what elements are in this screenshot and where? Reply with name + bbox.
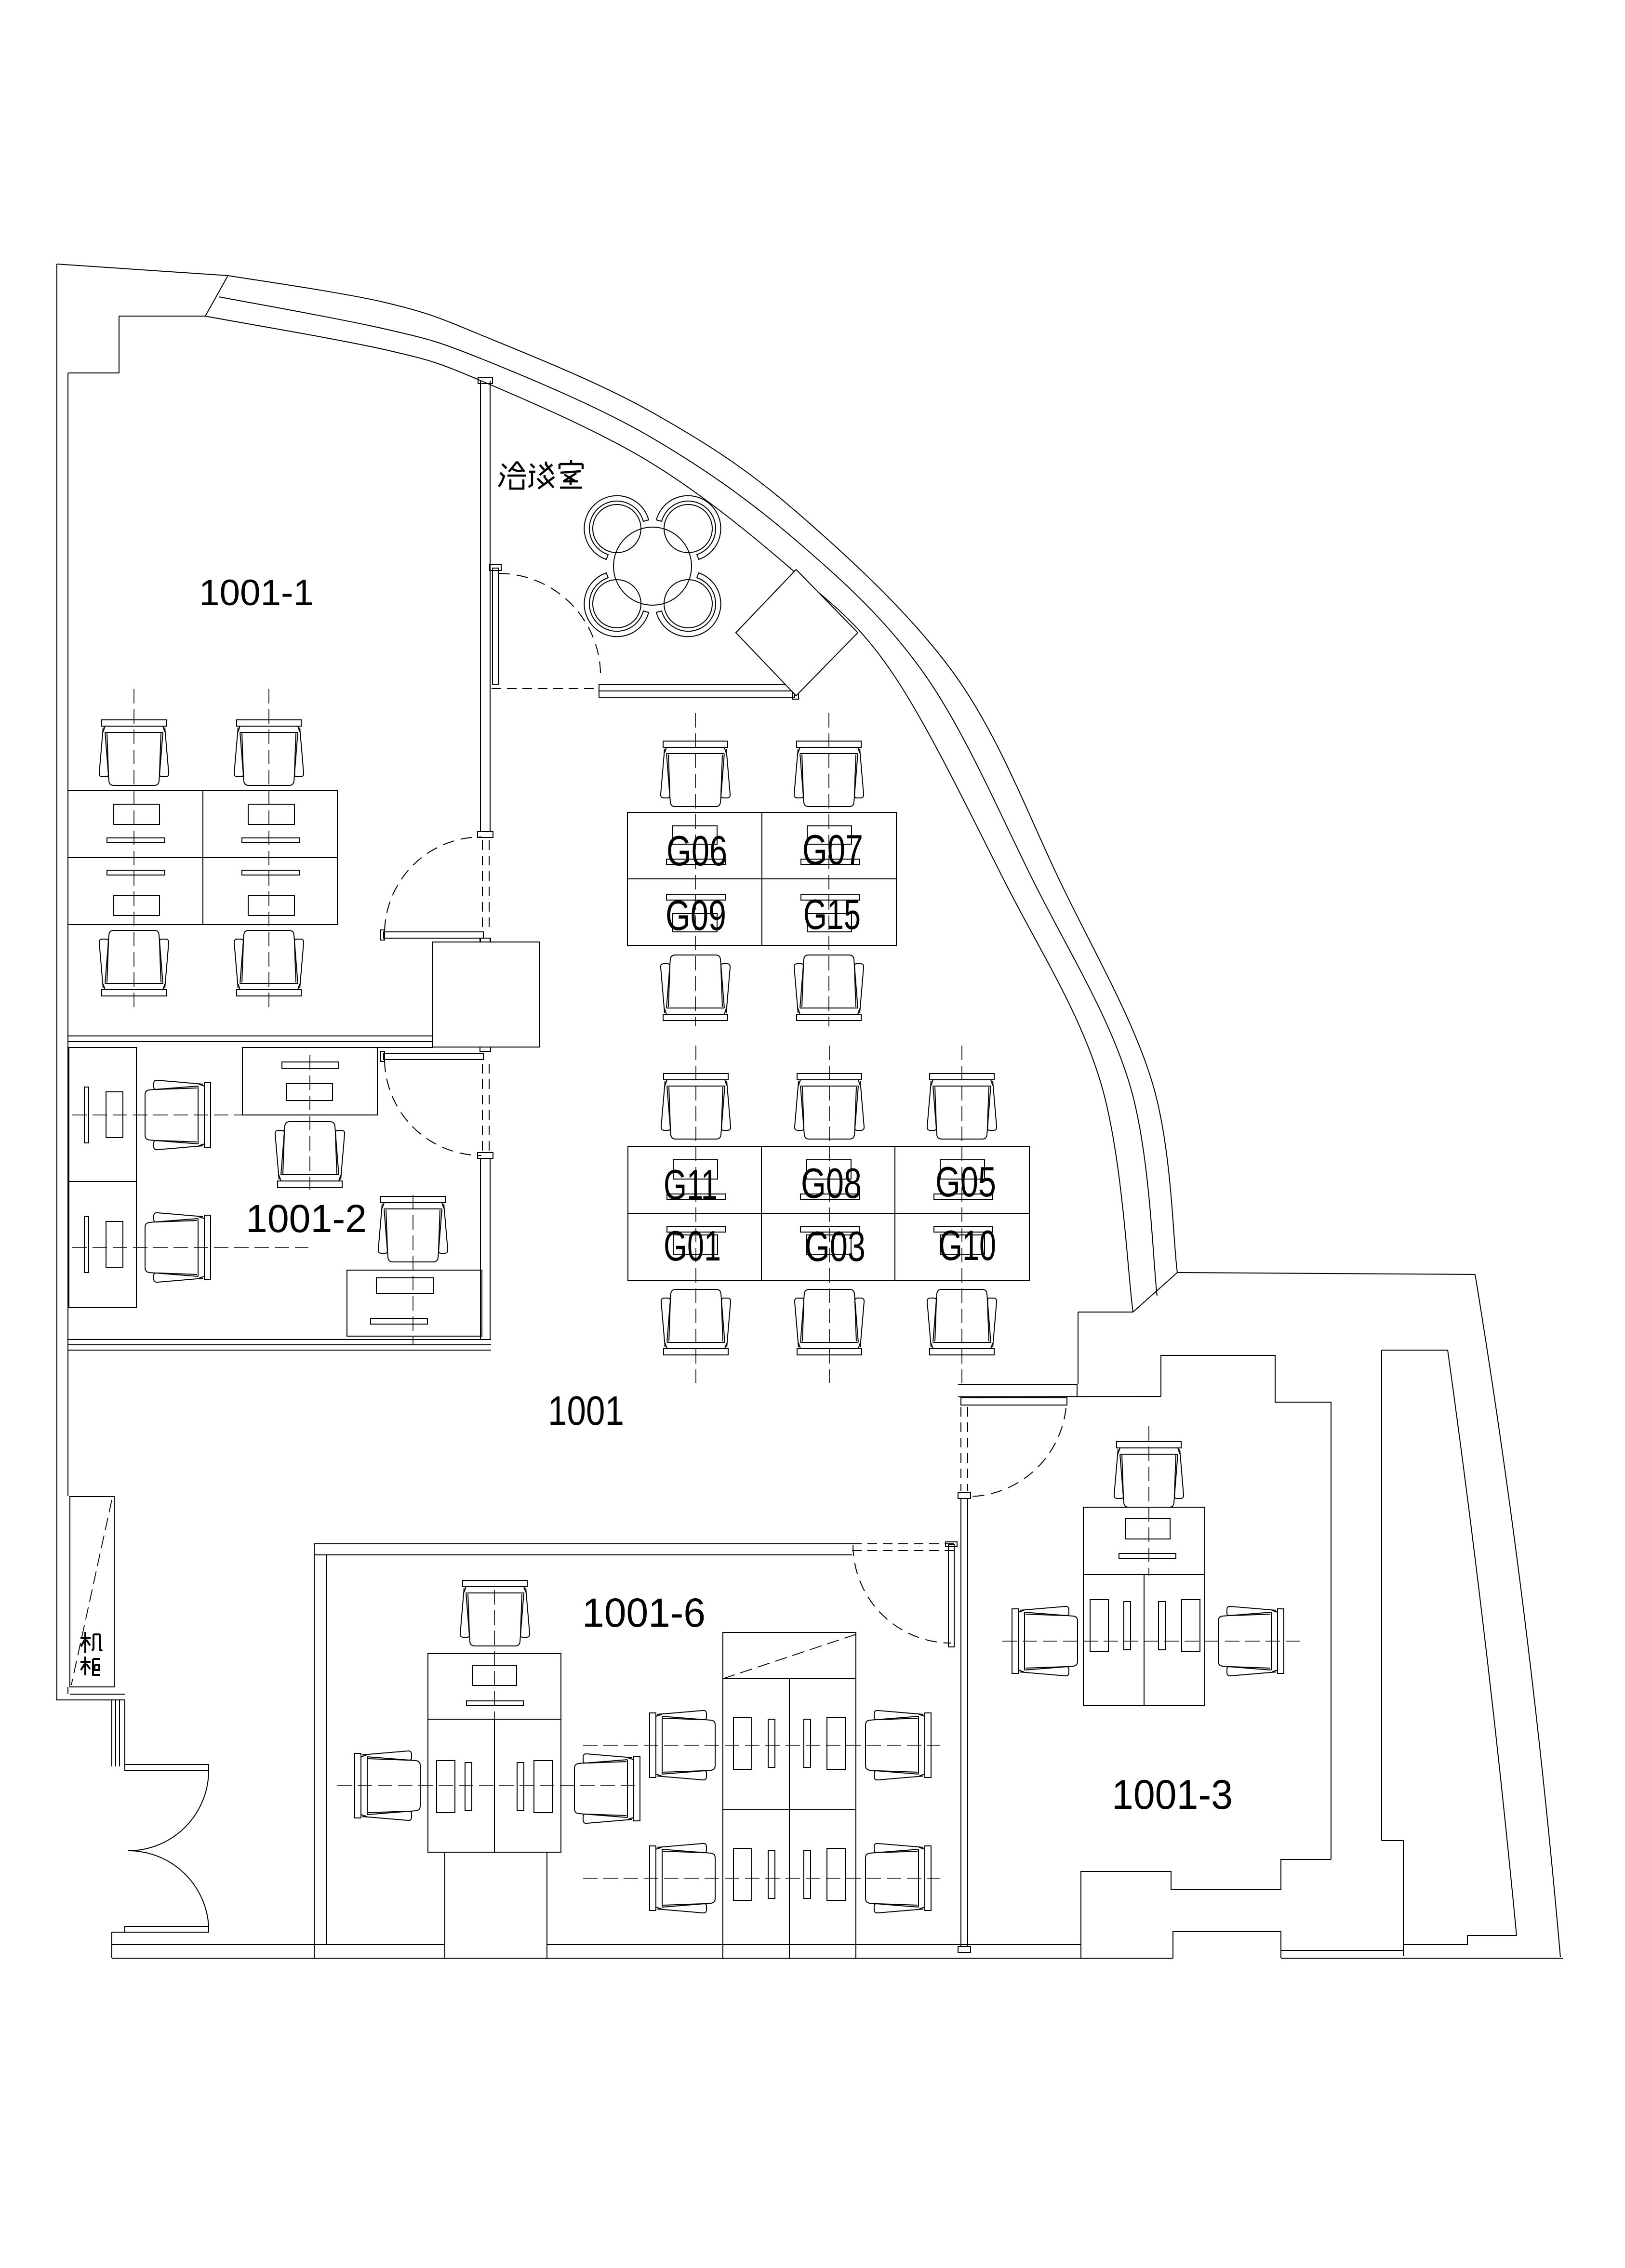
svg-text:G03: G03 xyxy=(805,1222,866,1270)
svg-text:G08: G08 xyxy=(801,1159,862,1207)
svg-text:1001-1: 1001-1 xyxy=(199,572,314,613)
svg-text:1001: 1001 xyxy=(548,1388,624,1434)
svg-text:1001-6: 1001-6 xyxy=(582,1590,706,1635)
svg-text:1001-3: 1001-3 xyxy=(1112,1772,1233,1818)
svg-text:G11: G11 xyxy=(664,1161,718,1208)
svg-text:G01: G01 xyxy=(664,1222,721,1270)
svg-text:1001-2: 1001-2 xyxy=(246,1197,367,1241)
svg-text:G07: G07 xyxy=(802,826,863,874)
svg-text:G10: G10 xyxy=(939,1221,996,1269)
svg-text:G15: G15 xyxy=(803,890,861,938)
svg-text:G06: G06 xyxy=(666,827,727,875)
svg-text:G05: G05 xyxy=(935,1158,996,1206)
